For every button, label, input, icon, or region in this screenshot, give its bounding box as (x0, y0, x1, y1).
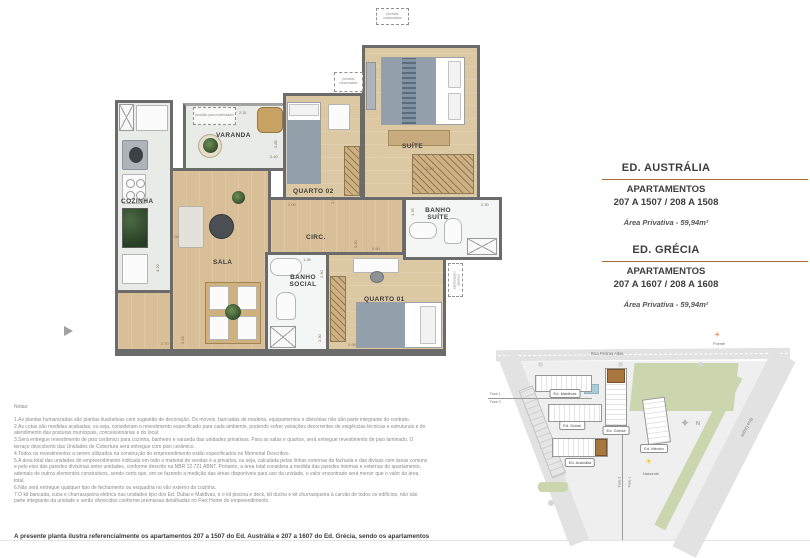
toilet-banho-social (276, 292, 296, 320)
varanda-plant-icon (203, 138, 218, 153)
dim-quarto02-bottom: 2.00 (288, 202, 296, 207)
dim-varanda-top: 2.31 (239, 110, 247, 115)
note-item: 6.Não será entregue qualquer tipo de fec… (14, 485, 430, 492)
sala-plant-icon (232, 191, 245, 204)
dim-cozinha-top: 1.50 (171, 234, 179, 239)
kitchen-sink-icon (136, 105, 168, 131)
washer-door (129, 147, 143, 163)
armchair-round (209, 214, 234, 239)
burner (126, 179, 135, 188)
notes-title: Notas: (14, 404, 430, 411)
wardrobe-suite (412, 154, 474, 194)
dim-banho-social-bottom: 2.30 (317, 334, 322, 342)
tv-cabinet-suite (366, 62, 376, 110)
compass-icon: ✦ (680, 416, 694, 430)
floorplan-page: { "panel": { "sections": [ {"building":"… (0, 0, 810, 540)
table-plant-icon (225, 304, 241, 320)
tree-icon (538, 362, 543, 367)
label-quarto02: QUARTO 02 (293, 188, 334, 195)
sun-west-icon: ☀ (714, 332, 720, 340)
apartment-floor-plan: previsão para condensador previsão conde… (60, 8, 520, 364)
dining-chair (209, 316, 229, 340)
building-dubai (548, 404, 602, 422)
label-banho-suite: BANHO SUÍTE (418, 207, 458, 221)
apartments-range: 207 A 1507 / 208 A 1508 (602, 197, 730, 208)
label-sala: SALA (213, 259, 232, 266)
wardrobe-quarto02 (344, 146, 360, 196)
dim-quarto02-right: 2.95 (330, 196, 335, 204)
fridge-icon (122, 254, 148, 284)
phase-line-vertical (622, 430, 623, 540)
phase1-label: Fase 1 (490, 392, 501, 396)
note-item: 4.Todos os revestimentos a serem utiliza… (14, 451, 430, 458)
note-item: 2.As cotas são medidas acabadas, ou seja… (14, 424, 430, 438)
dim-suite: 2.40 (426, 166, 434, 171)
dim-varanda-right: 0.85 (273, 140, 278, 148)
toilet-banho-suite (444, 218, 462, 244)
label-suite: SUÍTE (402, 143, 423, 150)
dim-banho-suite-left: 1.35 (410, 208, 415, 216)
washing-machine-icon (122, 140, 148, 170)
note-item: 1.As plantas humanizadas são plantas ilu… (14, 417, 430, 424)
badge-maldivas: Ed. Maldivas (550, 389, 581, 398)
dim-sala-left: 5.93 (180, 336, 185, 344)
dim-cozinha-left: 4.20 (155, 264, 160, 272)
shower-banho-suite (467, 238, 497, 255)
badge-mexico: Ed. México (640, 444, 668, 453)
sun-east-icon: ☀ (645, 458, 652, 466)
dim-quarto01-bottom: 2.95 (348, 342, 356, 347)
tree-icon (698, 362, 703, 367)
dim-banho-social-top: 1.35 (303, 257, 311, 262)
pillow (289, 104, 319, 116)
highlight-unit-grecia (607, 369, 625, 383)
varanda-armchair (257, 107, 283, 133)
shaft-icon (119, 104, 134, 131)
dim-banho-suite-top: 2.30 (481, 202, 489, 207)
duvet-quarto01 (357, 303, 405, 347)
divider-rule (602, 261, 808, 262)
phase1-label-vertical: Fase 1 (627, 477, 631, 488)
pillow (448, 61, 461, 88)
note-item: 5.A área total das unidades do empreendi… (14, 458, 430, 485)
dining-chair (237, 316, 257, 340)
apartments-label: APARTAMENTOS (602, 266, 730, 277)
badge-grecia: Ed. Grécia (603, 426, 630, 435)
shower-banho-social (270, 326, 296, 348)
building-name-australia: ED. AUSTRÁLIA (602, 162, 730, 174)
bed-runner-suite (402, 58, 416, 124)
street-centerline (498, 353, 788, 357)
sofa (178, 206, 204, 248)
tree-icon (618, 362, 623, 367)
condenser-box-quarto01: previsão condensador (448, 263, 463, 297)
dining-chair (237, 286, 257, 310)
dim-sala-bottom: 2.70 (161, 341, 169, 346)
dim-banho-social-right: 2.30 (319, 270, 324, 278)
outer-wall-bottom (115, 349, 446, 356)
apartments-range: 207 A 1607 / 208 A 1608 (602, 279, 730, 290)
phase-line-horizontal (488, 398, 592, 399)
notes-block: Notas: 1.As plantas humanizadas são plan… (14, 404, 430, 505)
desk-quarto02 (328, 104, 350, 130)
street-right-label: Rua Degas (740, 417, 754, 438)
label-varanda: VARANDA (216, 132, 251, 139)
label-quarto01: QUARTO 01 (364, 296, 405, 303)
reference-footer-text: A presente planta ilustra referencialmen… (14, 533, 804, 540)
building-name-grecia: ED. GRÉCIA (602, 244, 730, 256)
apartments-label: APARTAMENTOS (602, 184, 730, 195)
badge-dubai: Ed. Dubai (559, 421, 585, 430)
dim-circ-a: 0.90 (353, 240, 358, 248)
note-item: 7.O kit bancada, cuba e churrasqueira el… (14, 492, 430, 506)
duvet-quarto02 (287, 120, 321, 184)
highlight-unit-australia (595, 439, 607, 456)
badge-australia: Ed. Austrália (565, 458, 595, 467)
private-area-label: Área Privativa - 59,94m² (602, 300, 730, 309)
phase2-label: Fase 2 (490, 400, 501, 404)
street-top (496, 348, 790, 362)
phase2-label-vertical: Fase 2 (617, 477, 621, 488)
dim-circ-b: 0.90 (372, 246, 380, 251)
dim-varanda-bottom: 2.40 (270, 154, 278, 159)
street-top-label: Rua Pedras Altas (591, 351, 623, 356)
desk-chair-quarto01 (370, 271, 384, 283)
pillow (448, 93, 461, 120)
label-cozinha: COZINHA (121, 198, 153, 205)
entrance-arrow-icon (64, 326, 73, 336)
label-banho-social: BANHO SOCIAL (282, 274, 324, 288)
note-item: 3.Será entregue revestimento de piso cer… (14, 437, 430, 451)
green-patch (538, 482, 568, 492)
condenser-box-varanda: previsão para condensador (193, 107, 236, 125)
sun-east-label: Nascente (643, 472, 659, 476)
kitchen-counter-plants (122, 208, 148, 248)
compass-north-label: N (696, 421, 700, 427)
burner (136, 179, 145, 188)
site-plan-map: Rua Degas Av. Dom Helder Câmara Rua Pedr… (488, 332, 810, 540)
sink-banho-suite (409, 222, 437, 239)
wardrobe-quarto01 (330, 276, 346, 342)
condenser-box-suite: previsão condensador (376, 8, 409, 25)
pillow (420, 306, 436, 344)
condenser-box-quarto02: previsão condensador (334, 72, 363, 92)
sun-west-label: Poente (713, 342, 725, 346)
divider-rule (602, 179, 808, 180)
tree-icon (548, 500, 554, 506)
label-circ: CIRC. (306, 234, 326, 241)
private-area-label: Área Privativa - 59,94m² (602, 218, 730, 227)
